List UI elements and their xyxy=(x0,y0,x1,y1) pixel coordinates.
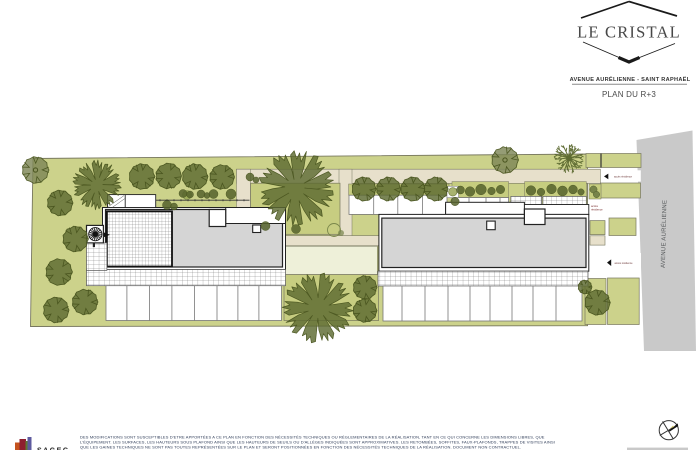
svg-text:résidence: résidence xyxy=(591,208,603,212)
svg-text:accès résidence: accès résidence xyxy=(614,175,633,178)
svg-text:PLAN DU R+3: PLAN DU R+3 xyxy=(602,90,656,99)
svg-text:accès résidence: accès résidence xyxy=(615,262,634,265)
svg-text:LE CRISTAL: LE CRISTAL xyxy=(577,23,681,42)
svg-text:AVENUE AURÉLIENNE - SAINT RAPH: AVENUE AURÉLIENNE - SAINT RAPHAËL xyxy=(570,75,691,83)
svg-text:accès: accès xyxy=(591,204,599,208)
svg-text:QUE LES GAINES TECHNIQUES NE S: QUE LES GAINES TECHNIQUES NE SONT PAS TO… xyxy=(80,445,521,450)
